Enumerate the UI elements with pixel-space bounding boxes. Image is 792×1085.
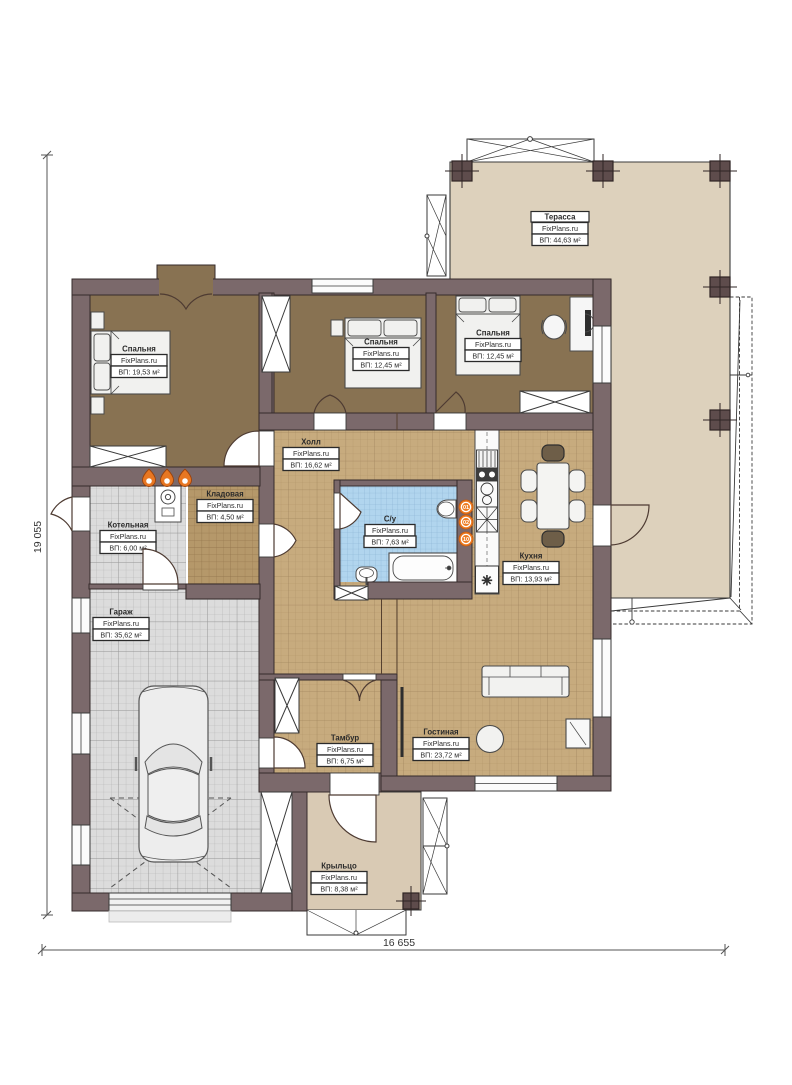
svg-text:FixPlans.ru: FixPlans.ru — [423, 739, 459, 748]
svg-text:ВП: 35,62 м²: ВП: 35,62 м² — [100, 630, 142, 639]
svg-text:Кладовая: Кладовая — [206, 490, 243, 499]
svg-text:Холл: Холл — [301, 438, 321, 447]
svg-text:FixPlans.ru: FixPlans.ru — [372, 526, 408, 535]
svg-text:FixPlans.ru: FixPlans.ru — [513, 563, 549, 572]
svg-text:С/у: С/у — [384, 515, 397, 524]
svg-text:ВП: 8,38 м²: ВП: 8,38 м² — [320, 884, 358, 893]
svg-text:19 055: 19 055 — [32, 521, 44, 553]
svg-text:FixPlans.ru: FixPlans.ru — [542, 224, 578, 233]
svg-text:FixPlans.ru: FixPlans.ru — [475, 340, 511, 349]
svg-text:ВП: 16,62 м²: ВП: 16,62 м² — [290, 460, 332, 469]
svg-text:Гостиная: Гостиная — [423, 728, 458, 737]
svg-text:ВП: 7,63 м²: ВП: 7,63 м² — [371, 537, 409, 546]
svg-text:ВП: 12,45 м²: ВП: 12,45 м² — [472, 351, 514, 360]
svg-text:FixPlans.ru: FixPlans.ru — [110, 532, 146, 541]
svg-text:ВП: 23,72 м²: ВП: 23,72 м² — [420, 750, 462, 759]
svg-text:ВП: 4,50 м²: ВП: 4,50 м² — [206, 512, 244, 521]
svg-text:ВП: 44,63 м²: ВП: 44,63 м² — [539, 235, 581, 244]
svg-text:Спальня: Спальня — [476, 329, 510, 338]
svg-text:ВП: 6,75 м²: ВП: 6,75 м² — [326, 756, 364, 765]
svg-text:Спальня: Спальня — [364, 338, 398, 347]
svg-text:ВП: 6,00 м²: ВП: 6,00 м² — [109, 543, 147, 552]
svg-text:✳: ✳ — [482, 573, 493, 588]
svg-text:ВП: 19,53 м²: ВП: 19,53 м² — [118, 367, 160, 376]
svg-text:FixPlans.ru: FixPlans.ru — [363, 349, 399, 358]
svg-text:FixPlans.ru: FixPlans.ru — [207, 501, 243, 510]
svg-text:Котельная: Котельная — [108, 521, 149, 530]
svg-text:FixPlans.ru: FixPlans.ru — [321, 873, 357, 882]
svg-text:02: 02 — [463, 520, 469, 526]
svg-text:Кухня: Кухня — [520, 552, 543, 561]
svg-text:16 655: 16 655 — [383, 937, 415, 949]
svg-text:FixPlans.ru: FixPlans.ru — [293, 449, 329, 458]
svg-text:ВП: 13,93 м²: ВП: 13,93 м² — [510, 574, 552, 583]
svg-text:FixPlans.ru: FixPlans.ru — [121, 356, 157, 365]
svg-text:Крыльцо: Крыльцо — [321, 862, 357, 871]
svg-text:01: 01 — [463, 505, 469, 511]
svg-text:ВП: 12,45 м²: ВП: 12,45 м² — [360, 360, 402, 369]
svg-text:FixPlans.ru: FixPlans.ru — [327, 745, 363, 754]
svg-text:Тамбур: Тамбур — [331, 734, 360, 743]
svg-text:Спальня: Спальня — [122, 345, 156, 354]
svg-text:10: 10 — [463, 537, 469, 543]
svg-text:Терасса: Терасса — [545, 213, 577, 222]
svg-text:Гараж: Гараж — [109, 608, 133, 617]
svg-text:FixPlans.ru: FixPlans.ru — [103, 619, 139, 628]
